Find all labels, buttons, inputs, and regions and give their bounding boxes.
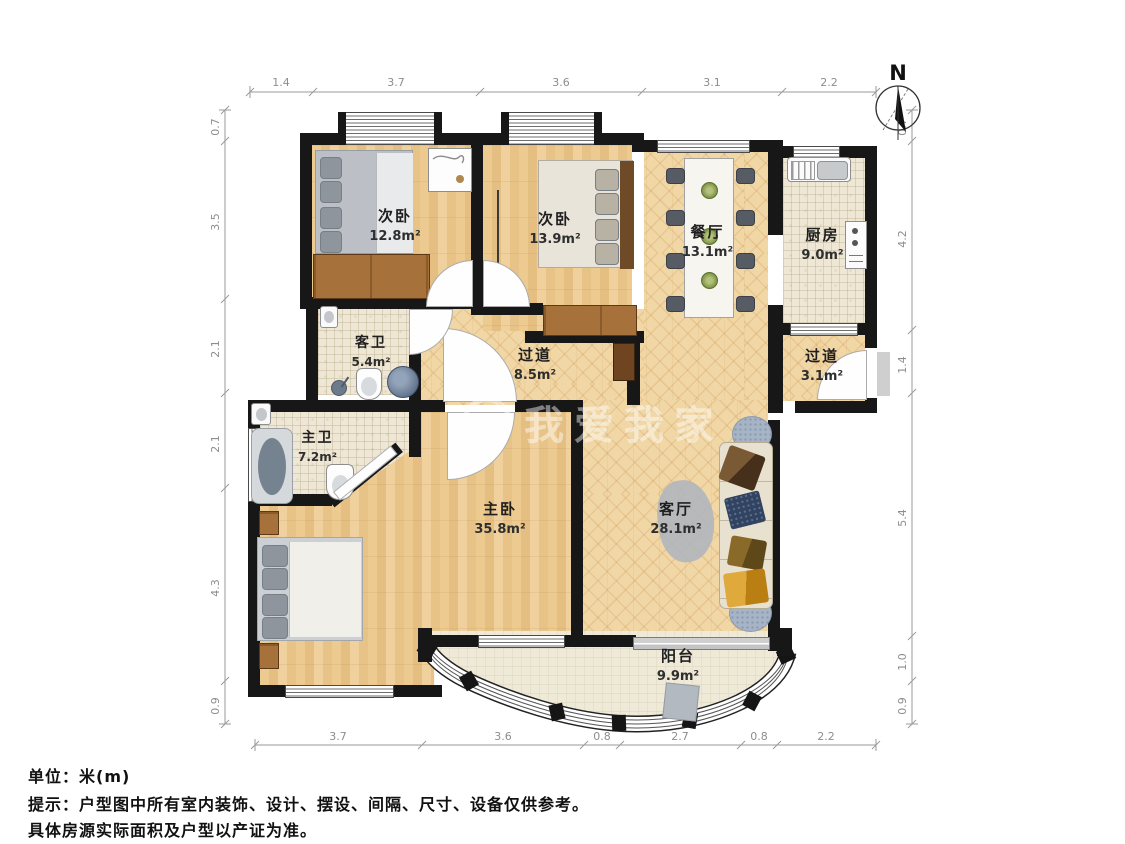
dim-bottom-0: 3.7 <box>329 730 347 743</box>
pillow <box>262 568 288 590</box>
room-label-hall1: 过道 8.5m² <box>480 344 590 383</box>
pillow <box>320 157 342 179</box>
room-name: 过道 <box>772 345 872 366</box>
room-label-bed2: 次卧 13.9m² <box>495 208 615 247</box>
wall-segment <box>409 412 421 457</box>
room-name: 阳台 <box>628 645 728 666</box>
room-name: 次卧 <box>495 208 615 229</box>
room-area: 13.9m² <box>495 232 615 247</box>
sofa-pillow <box>727 535 768 571</box>
pillow <box>595 169 619 191</box>
kitchen-pass-window <box>790 323 858 336</box>
kitchen-sink <box>787 157 851 182</box>
compass-needle <box>895 86 906 132</box>
bay-window <box>504 112 602 145</box>
table-plant <box>701 182 718 199</box>
sink-basin <box>324 311 334 323</box>
room-name: 次卧 <box>330 205 460 226</box>
room-area: 9.0m² <box>770 248 875 263</box>
master-window <box>285 685 394 698</box>
dim-right-5: 0.9 <box>896 697 909 715</box>
pillow <box>262 617 288 639</box>
bay-window-cap <box>338 112 346 145</box>
headboard <box>620 161 634 269</box>
room-label-guest-bath: 客卫 5.4m² <box>325 332 417 369</box>
dim-top-0: 1.4 <box>272 76 290 89</box>
dining-window <box>657 140 750 153</box>
basin-tub <box>387 366 419 398</box>
chair <box>736 168 755 184</box>
bay-window-cap <box>501 112 509 145</box>
dim-right-4: 1.0 <box>896 653 909 671</box>
dim-left-5: 0.9 <box>209 697 222 715</box>
pillow <box>262 594 288 616</box>
wall-segment <box>632 140 657 152</box>
wall-segment <box>300 133 312 309</box>
dim-left-0: 0.7 <box>209 118 222 136</box>
room-name: 客卫 <box>325 332 417 352</box>
floorplan-canvas: 我爱我家 次卧 12.8m² 次卧 13.9m² 餐厅 13.1m² 厨房 9.… <box>0 0 1125 844</box>
wall-segment <box>434 133 506 145</box>
wall-segment <box>795 401 877 413</box>
wall-segment <box>768 146 783 235</box>
chair <box>736 296 755 312</box>
room-name: 餐厅 <box>650 221 765 242</box>
room-name: 主卫 <box>270 427 365 447</box>
dim-top-3: 3.1 <box>703 76 721 89</box>
wardrobe <box>543 305 637 336</box>
nightstand <box>259 643 279 669</box>
room-label-living: 客厅 28.1m² <box>620 498 732 537</box>
bed <box>257 537 363 641</box>
sink-bowl <box>817 161 848 180</box>
unit-note: 单位：米(m) <box>28 763 130 787</box>
toilet <box>356 368 382 400</box>
room-area: 3.1m² <box>772 369 872 384</box>
dresser <box>428 148 472 192</box>
room-name: 厨房 <box>770 224 875 245</box>
room-area: 9.9m² <box>628 669 728 684</box>
table-plant <box>701 272 718 289</box>
master-balcony-window <box>478 635 565 648</box>
room-label-balcony: 阳台 9.9m² <box>628 645 728 684</box>
shower-head <box>329 376 349 398</box>
room-label-master: 主卧 35.8m² <box>445 498 555 537</box>
room-label-bed1: 次卧 12.8m² <box>330 205 460 244</box>
hall-cabinet <box>613 343 635 381</box>
room-name: 主卧 <box>445 498 555 519</box>
bay-window-cap <box>594 112 602 145</box>
room-label-kitchen: 厨房 9.0m² <box>770 224 875 263</box>
wall-segment <box>856 323 877 335</box>
room-area: 28.1m² <box>620 522 732 537</box>
dim-right-2: 1.4 <box>896 356 909 374</box>
wall-segment <box>563 635 636 647</box>
room-label-hall2: 过道 3.1m² <box>772 345 872 384</box>
dim-top-2: 3.6 <box>552 76 570 89</box>
dim-left-1: 3.5 <box>209 213 222 231</box>
chair <box>666 296 685 312</box>
sofa-pillow <box>723 568 769 608</box>
dim-right-3: 5.4 <box>896 509 909 527</box>
bay-window <box>340 112 442 145</box>
pillow <box>320 181 342 203</box>
room-area: 12.8m² <box>330 229 460 244</box>
wall-segment <box>248 400 421 412</box>
room-label-master-bath: 主卫 7.2m² <box>270 427 365 464</box>
wall-segment <box>306 297 318 407</box>
dim-bottom-5: 2.2 <box>817 730 835 743</box>
dim-top-4: 2.2 <box>820 76 838 89</box>
room-label-dining: 餐厅 13.1m² <box>650 221 765 260</box>
room-area: 35.8m² <box>445 522 555 537</box>
room-area: 13.1m² <box>650 245 765 260</box>
chair <box>666 168 685 184</box>
compass-north-label: N <box>889 61 907 85</box>
bay-window-cap <box>434 112 442 145</box>
wall-segment <box>571 405 583 647</box>
wall-segment <box>420 635 478 647</box>
balcony-mat <box>662 682 700 721</box>
toilet-bowl <box>361 377 377 396</box>
nightstand <box>259 511 279 535</box>
dim-left-3: 2.1 <box>209 435 222 453</box>
bathroom-sink <box>320 306 338 328</box>
room-name: 过道 <box>480 344 590 365</box>
dim-left-4: 4.3 <box>209 579 222 597</box>
bathroom-sink <box>251 403 271 425</box>
wall-segment <box>392 685 442 697</box>
entry-door-mat <box>877 352 890 396</box>
dim-right-0: 0.7 <box>896 118 909 136</box>
compass: N <box>876 61 920 140</box>
dim-left-2: 2.1 <box>209 340 222 358</box>
dim-right-1: 4.2 <box>896 230 909 248</box>
room-name: 客厅 <box>620 498 732 519</box>
wall-segment <box>248 685 285 697</box>
disclaimer-line1: 提示：户型图中所有室内装饰、设计、摆设、间隔、尺寸、设备仅供参考。 <box>28 791 589 815</box>
sink-basin <box>256 408 267 421</box>
disclaimer-line2: 具体房源实际面积及户型以产证为准。 <box>28 817 317 841</box>
dish-rack <box>791 161 815 180</box>
room-area: 7.2m² <box>270 450 365 464</box>
room-area: 5.4m² <box>325 355 417 369</box>
wardrobe <box>313 254 430 299</box>
dim-top-1: 3.7 <box>387 76 405 89</box>
mattress <box>289 542 361 637</box>
room-area: 8.5m² <box>480 368 590 383</box>
pillow <box>262 545 288 567</box>
